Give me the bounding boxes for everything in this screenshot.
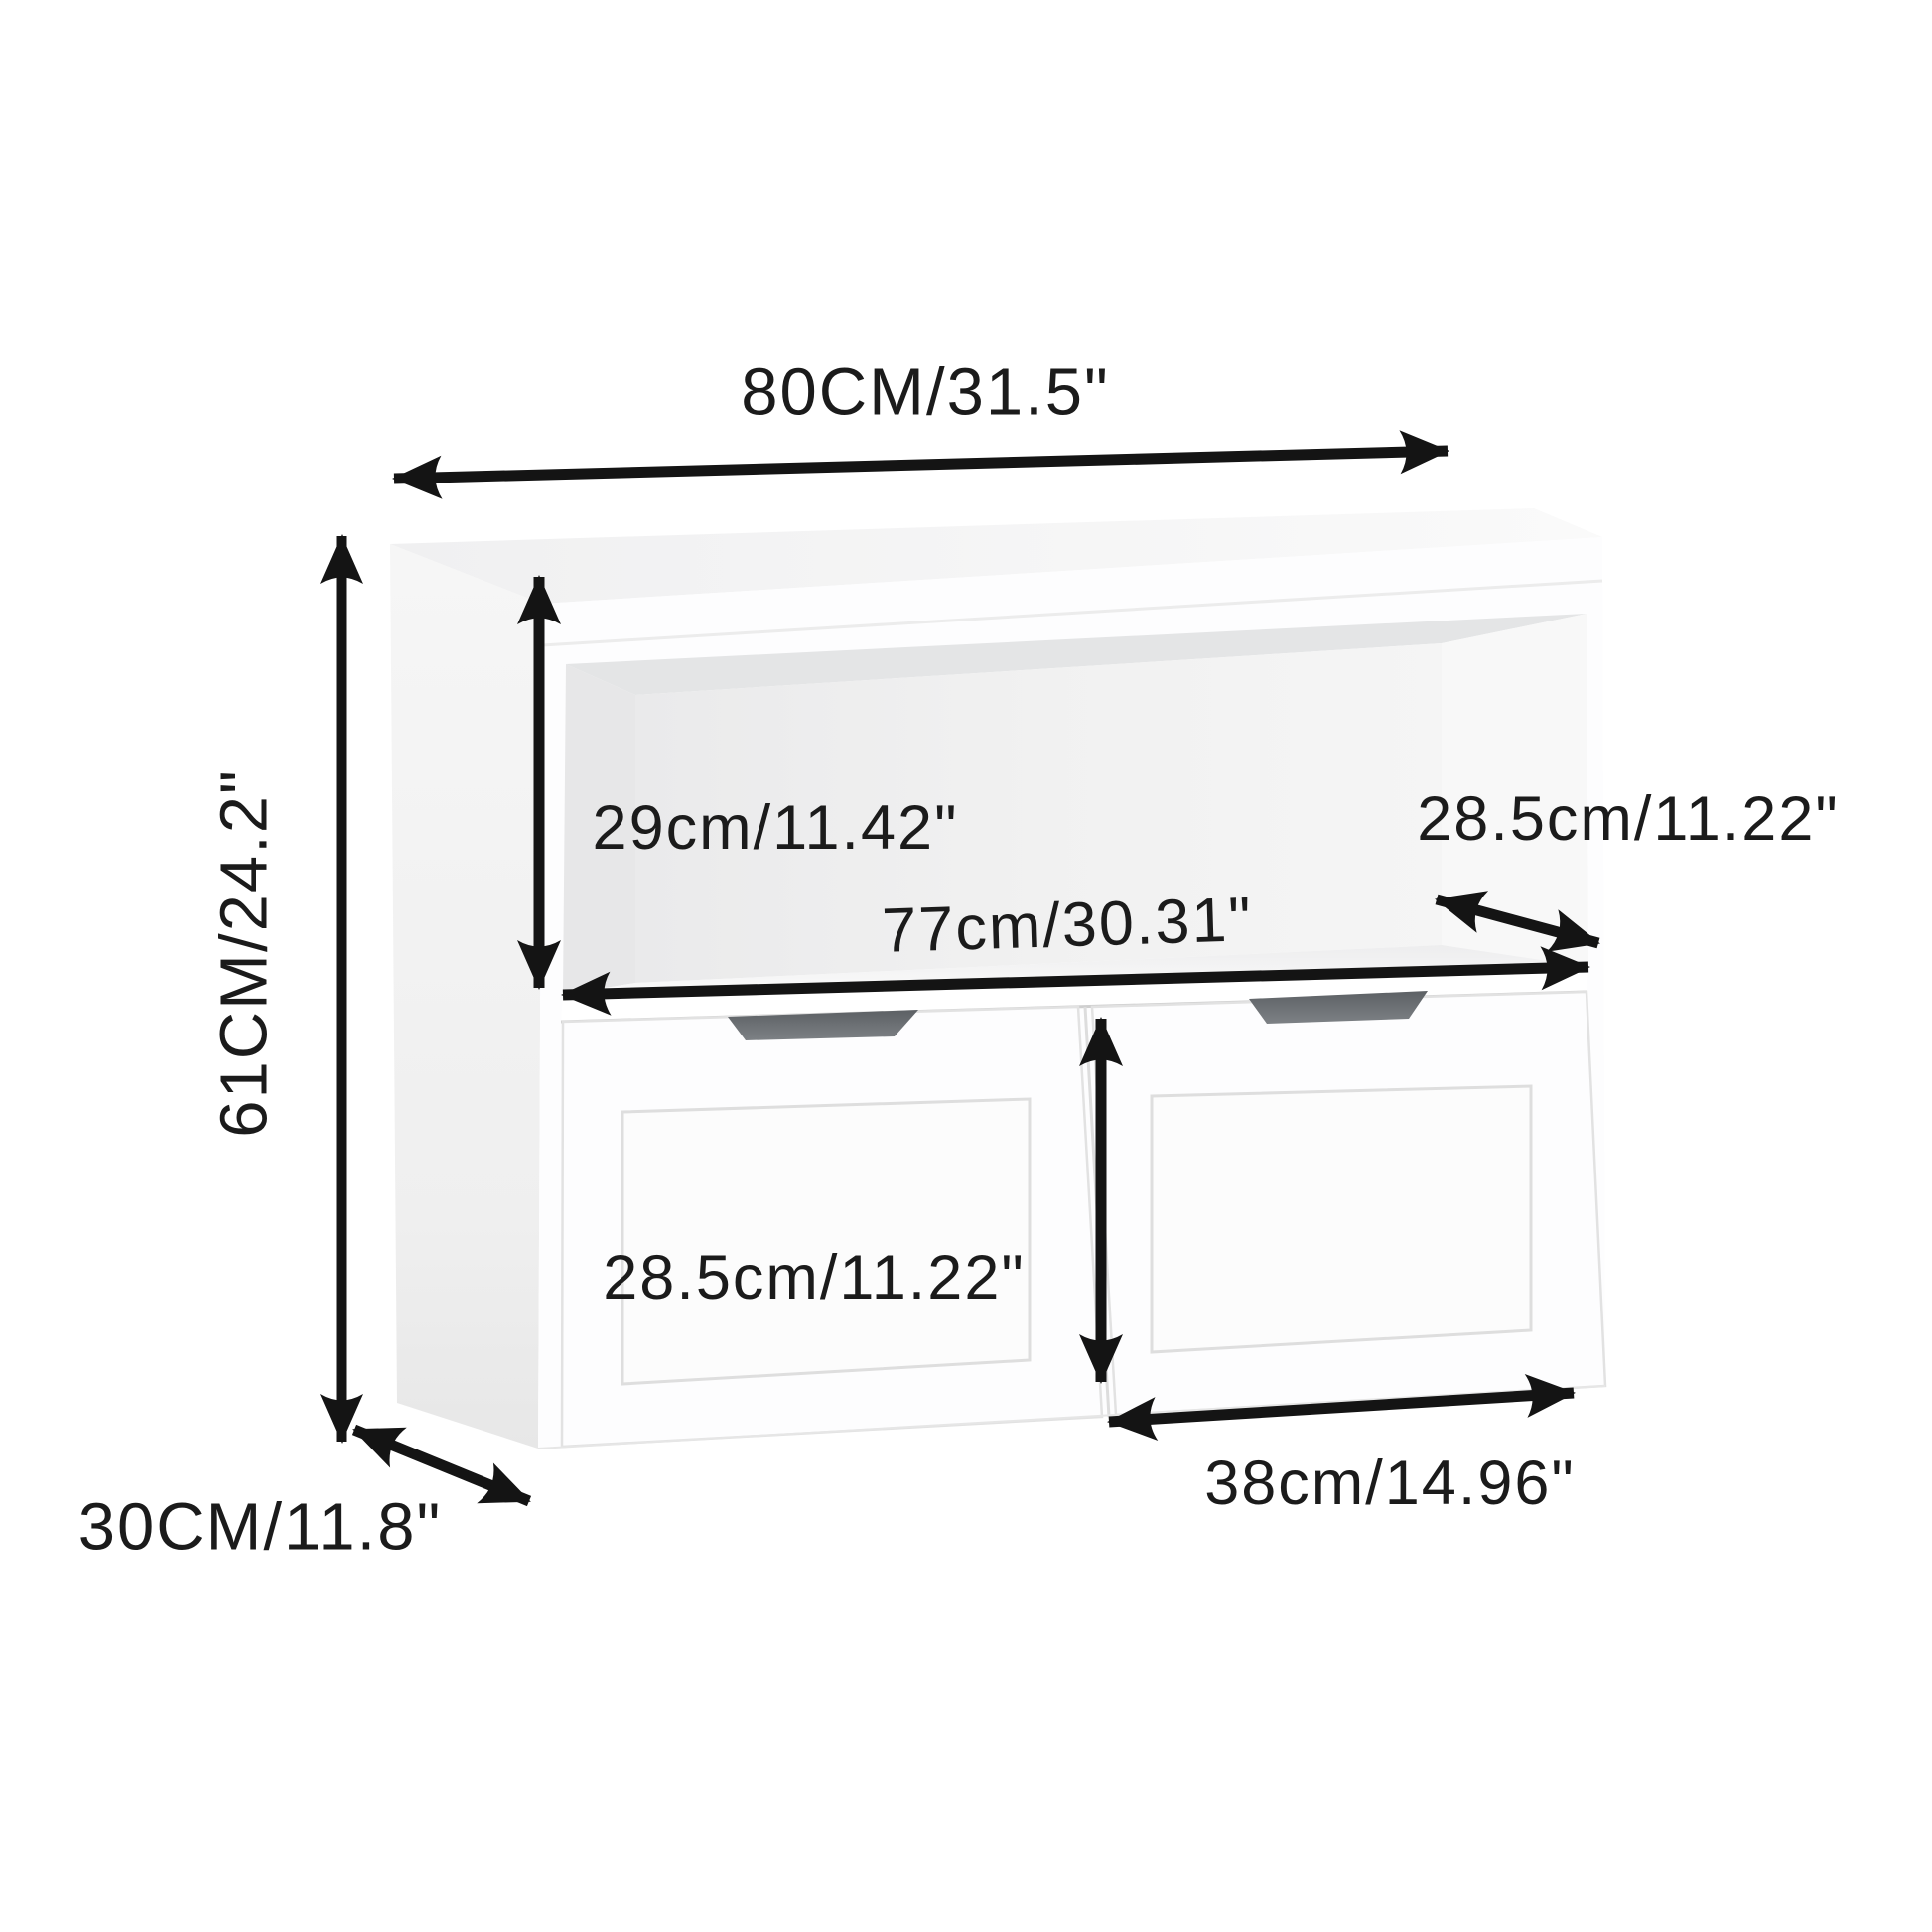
dim-label-overall-depth: 30CM/11.8" bbox=[78, 1489, 443, 1566]
cabinet-illustration bbox=[0, 0, 1932, 1932]
drawer-right-panel bbox=[1152, 1086, 1531, 1352]
arrow-overall-width bbox=[394, 451, 1448, 479]
dimension-diagram: 80CM/31.5" 61CM/24.2" 29cm/11.42" 77cm/3… bbox=[0, 0, 1932, 1932]
dim-label-overall-height: 61CM/24.2" bbox=[207, 768, 283, 1138]
drawer-right bbox=[1092, 991, 1605, 1415]
dim-label-drawer-height: 28.5cm/11.22" bbox=[603, 1242, 1025, 1313]
dim-label-shelf-depth: 28.5cm/11.22" bbox=[1417, 783, 1839, 855]
dim-label-overall-width: 80CM/31.5" bbox=[741, 354, 1110, 431]
drawer-left bbox=[562, 1007, 1102, 1447]
dim-label-drawer-width: 38cm/14.96" bbox=[1204, 1448, 1576, 1519]
dim-label-inner-width: 77cm/30.31" bbox=[881, 884, 1254, 967]
cabinet-left-side-face bbox=[390, 544, 542, 1449]
dim-label-shelf-height: 29cm/11.42" bbox=[593, 792, 959, 864]
